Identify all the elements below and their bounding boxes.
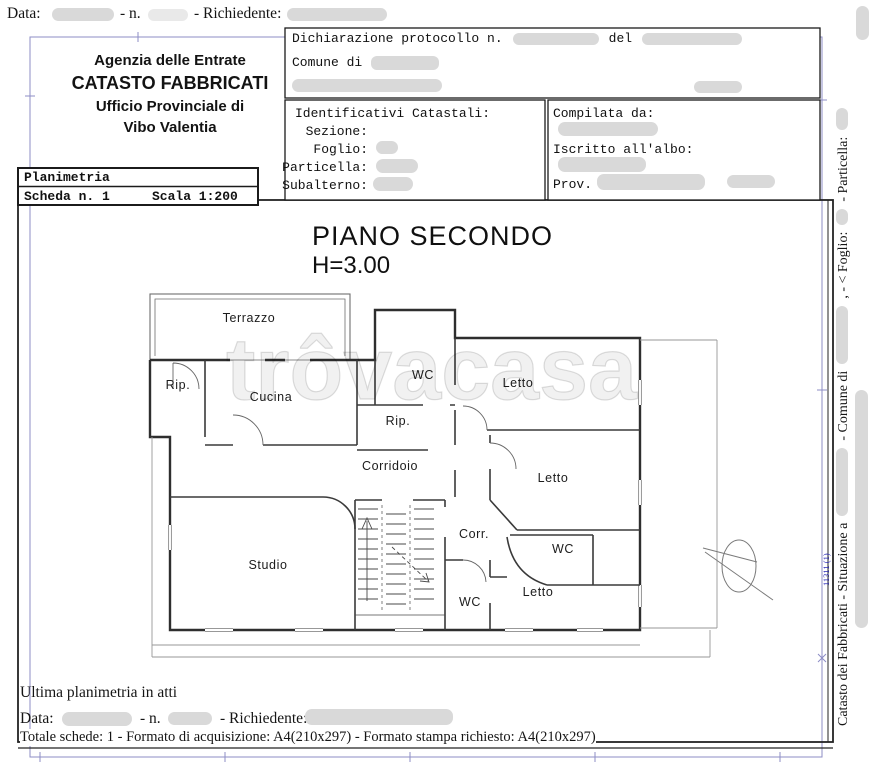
footer-data-label: Data:: [20, 710, 54, 728]
redaction-bar: [558, 122, 658, 136]
terrace-walls: [150, 294, 350, 360]
redaction-bar: [376, 159, 418, 173]
particella-label: Particella:: [282, 160, 368, 175]
room-label-letto-top: Letto: [503, 376, 534, 390]
redaction-bar: [558, 157, 646, 172]
dichiarazione-row-1: Dichiarazione protocollo n. del: [292, 31, 742, 46]
sezione-label: Sezione:: [306, 124, 368, 139]
wall-openings: [170, 360, 640, 630]
room-label-letto-bottom: Letto: [523, 585, 554, 599]
room-label-wc-top: WC: [412, 368, 434, 382]
room-label-studio: Studio: [248, 558, 287, 572]
room-label-corridoio: Corridoio: [362, 459, 418, 473]
redaction-bar: [855, 390, 868, 628]
plan-height-label: H=3.00: [312, 252, 390, 280]
window-glyphs: [169, 360, 642, 631]
scheda-label: Scheda n. 1: [24, 189, 110, 204]
boundary-lines: [152, 340, 717, 657]
footer-richiedente-label: - Richiedente:: [220, 710, 307, 728]
subalterno-label: Subalterno:: [282, 178, 368, 193]
caption-catasto: Catasto dei Fabbricati - Situazione a: [836, 523, 851, 726]
redaction-bar: [694, 81, 742, 93]
room-label-corr: Corr.: [459, 527, 489, 541]
stairs: [355, 505, 445, 615]
room-label-cucina: Cucina: [250, 390, 293, 404]
black-frame: [18, 200, 833, 748]
redaction-bar: [597, 174, 705, 190]
room-label-wc-bottom: WC: [459, 595, 481, 609]
iscritto-label: Iscritto all'albo:: [553, 142, 693, 157]
redaction-bar: [292, 79, 442, 92]
caption-particella: - Particella:: [836, 137, 851, 202]
ultima-planimetria-label: Ultima planimetria in atti: [20, 684, 177, 702]
redaction-bar: [836, 209, 848, 225]
blue-stamp-annotation: 11311 (1): [821, 532, 831, 586]
redaction-bar: [836, 448, 848, 516]
caption-foglio: , - < Foglio:: [836, 232, 851, 299]
redaction-bar: [642, 33, 742, 45]
footer-n-label: - n.: [140, 710, 161, 728]
door-arcs: [173, 363, 516, 582]
room-label-letto-mid: Letto: [538, 471, 569, 485]
room-label-terrazzo: Terrazzo: [223, 311, 276, 325]
planimetria-title: Planimetria: [24, 170, 110, 185]
identificativi-title: Identificativi Catastali:: [295, 106, 490, 121]
scala-label: Scala 1:200: [152, 189, 238, 204]
redaction-bar: [856, 6, 869, 40]
room-label-rip-left: Rip.: [166, 378, 191, 392]
totale-schede-line: Totale schede: 1 - Formato di acquisizio…: [20, 729, 596, 746]
del-label: del: [609, 31, 632, 46]
redaction-bar: [373, 177, 413, 191]
comune-label: Comune di: [292, 55, 362, 70]
room-label-rip-center: Rip.: [386, 414, 411, 428]
plan-title: PIANO SECONDO: [312, 221, 553, 252]
caption-comune: - Comune di: [836, 371, 851, 441]
redaction-bar: [62, 712, 132, 726]
right-margin-caption: Catasto dei Fabbricati - Situazione a- C…: [836, 0, 855, 768]
compass-icon: [703, 540, 773, 600]
redaction-bar: [376, 141, 398, 154]
cadastral-document-page: { "colors": { "redaction": "#d9d9d9", "r…: [0, 0, 878, 768]
compilata-label: Compilata da:: [553, 106, 654, 121]
redaction-bar: [168, 712, 212, 725]
foglio-label: Foglio:: [313, 142, 368, 157]
room-label-wc-right: WC: [552, 542, 574, 556]
redaction-bar: [305, 709, 453, 725]
redaction-bar: [836, 306, 848, 364]
redaction-bar: [727, 175, 775, 188]
interior-walls: [170, 338, 640, 630]
redaction-bar: [513, 33, 599, 45]
protocollo-label: Dichiarazione protocollo n.: [292, 31, 503, 46]
redaction-bar: [836, 108, 848, 130]
dichiarazione-row-2: Comune di: [292, 55, 439, 70]
redaction-bar: [371, 56, 439, 70]
prov-label: Prov.: [553, 177, 592, 192]
